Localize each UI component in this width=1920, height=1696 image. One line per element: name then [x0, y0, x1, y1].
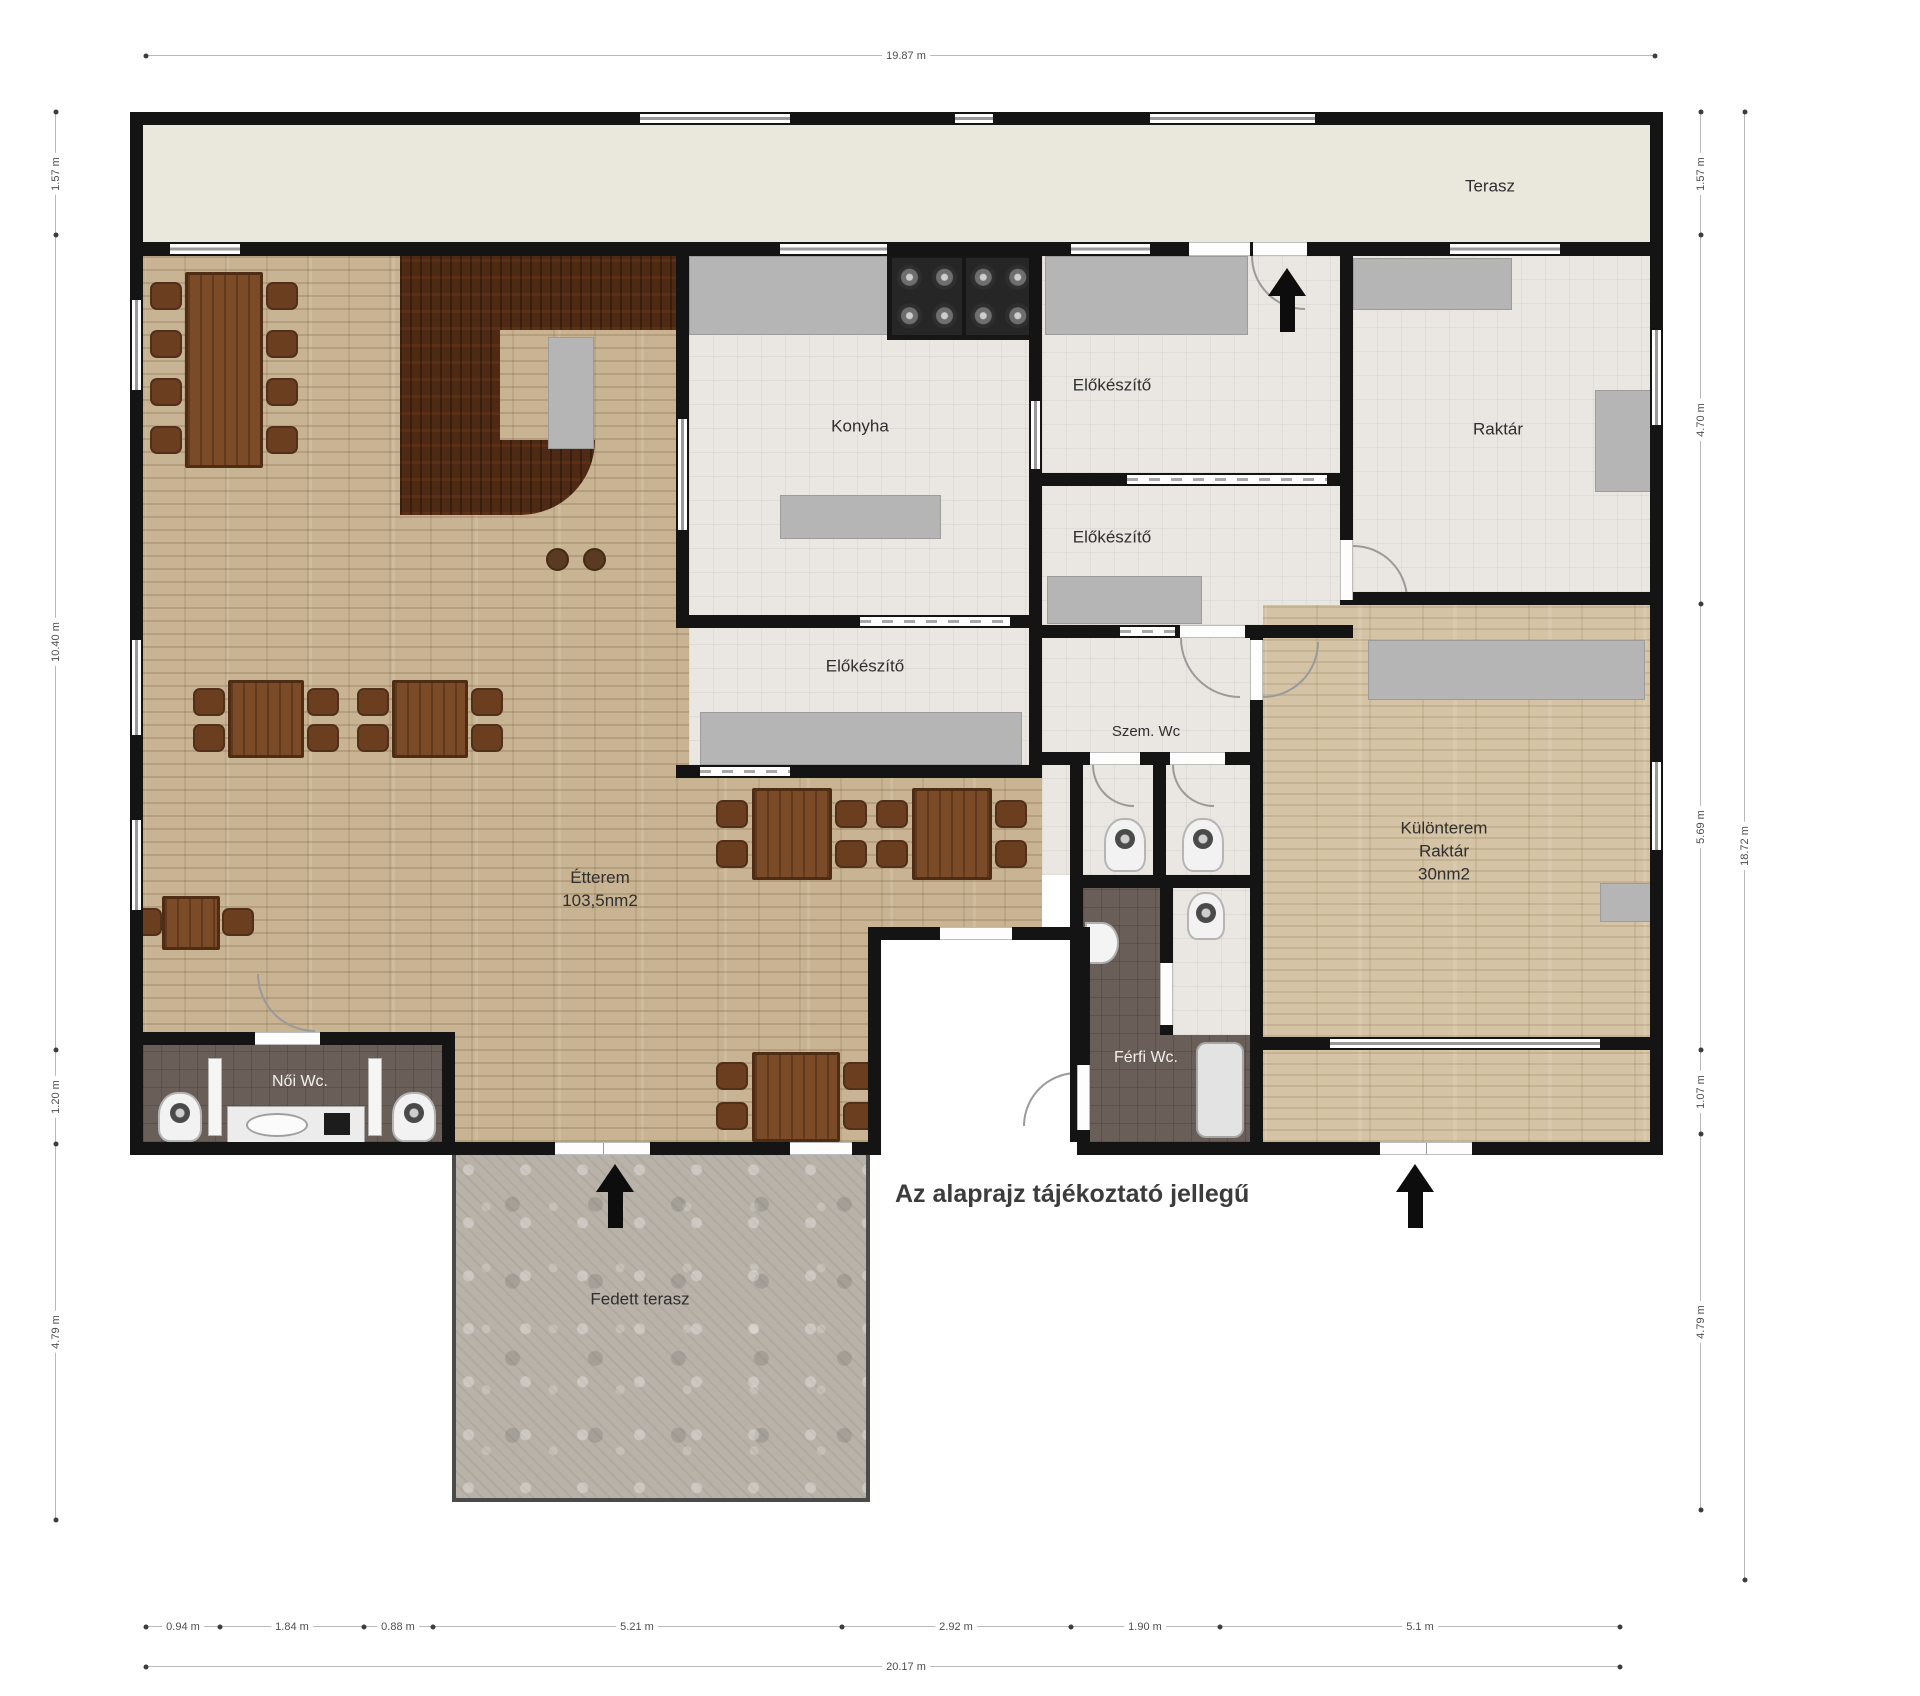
dim-dot — [1699, 602, 1704, 607]
dim-line-bottom-chain — [146, 1626, 1620, 1627]
label-terasz: Terasz — [1465, 176, 1515, 199]
dim-label-top-total: 19.87 m — [882, 50, 930, 62]
chair — [357, 688, 389, 716]
chair — [150, 330, 182, 358]
door-service-exit — [1077, 1065, 1090, 1130]
kulonterem-shelf-small — [1600, 883, 1652, 922]
dim-dot — [1218, 1625, 1223, 1630]
wall-outer-top — [130, 112, 1663, 125]
chair — [266, 282, 298, 310]
label-kulonterem-line1: Különterem — [1401, 819, 1488, 838]
label-kulonterem-line3: 30nm2 — [1418, 864, 1470, 883]
stove — [887, 253, 1040, 340]
door-stall — [1170, 752, 1225, 765]
arrow-stem — [1408, 1192, 1423, 1228]
chair — [471, 724, 503, 752]
raktar-shelf-right — [1595, 390, 1652, 492]
entrance-arrow-bottom-right — [1396, 1164, 1434, 1228]
label-etterem-area: 103,5nm2 — [562, 891, 638, 910]
window — [780, 244, 887, 254]
toilet — [1182, 818, 1224, 872]
door-kulonterem — [1250, 640, 1263, 700]
entrance-arrow-top — [1268, 268, 1306, 332]
dim-label-left-1: 10.40 m — [50, 618, 62, 666]
dim-dot — [54, 1048, 59, 1053]
bar-stool — [583, 548, 606, 571]
window — [1652, 762, 1661, 850]
door-main-entrance — [1253, 242, 1307, 256]
dim-label-bottom-4: 2.92 m — [935, 1621, 977, 1633]
toilet — [392, 1092, 436, 1142]
dim-label-bottom-total: 20.17 m — [882, 1661, 930, 1673]
dim-dot — [1699, 1048, 1704, 1053]
arrow-head-icon — [1268, 268, 1306, 296]
label-szem-wc: Szem. Wc — [1112, 722, 1180, 742]
dim-dot — [1743, 110, 1748, 115]
room-terasz-floor — [143, 125, 1650, 242]
long-table — [185, 272, 263, 468]
chair — [995, 840, 1027, 868]
dim-dot — [54, 1518, 59, 1523]
bar-stool — [546, 548, 569, 571]
dim-dot — [362, 1625, 367, 1630]
wall-notch-left — [868, 927, 881, 1155]
dim-dot — [431, 1625, 436, 1630]
dim-dot — [840, 1625, 845, 1630]
chair — [307, 688, 339, 716]
floor-plan: 19.87 m 0.94 m 1.84 m 0.88 m 5.21 m 2.92… — [0, 0, 1920, 1696]
elokeszito1-counter — [1045, 256, 1248, 335]
window — [132, 820, 141, 910]
label-noi-wc: Női Wc. — [272, 1071, 328, 1093]
door-szemwc — [1180, 625, 1245, 638]
kitchen-counter — [689, 256, 889, 335]
dim-label-right-2: 5.69 m — [1695, 806, 1707, 848]
dim-dot — [1618, 1665, 1623, 1670]
disclaimer-text: Az alaprajz tájékoztató jellegű — [895, 1180, 1249, 1209]
label-elokeszito-1: Előkészítő — [1073, 375, 1151, 398]
dim-label-left-0: 1.57 m — [50, 153, 62, 195]
wall-noiwc-right — [442, 1032, 455, 1142]
noiwc-sink-counter — [227, 1106, 365, 1144]
window — [132, 300, 141, 390]
wall-szemwc-left — [1029, 638, 1042, 765]
dim-label-bottom-0: 0.94 m — [162, 1621, 204, 1633]
door-stall — [1090, 752, 1140, 765]
chair — [716, 840, 748, 868]
dim-label-right-1: 4.70 m — [1695, 399, 1707, 441]
window-kitchen-left — [678, 419, 687, 530]
dim-label-bottom-2: 0.88 m — [377, 1621, 419, 1633]
door-annex — [790, 1142, 852, 1155]
toilet — [1104, 818, 1146, 872]
urinal — [1085, 922, 1119, 964]
wall-stall-left — [1070, 765, 1083, 888]
label-konyha: Konyha — [831, 416, 889, 439]
arrow-stem — [608, 1192, 623, 1228]
label-kulonterem-line2: Raktár — [1419, 842, 1469, 861]
door-etterem-notch — [940, 927, 1012, 940]
sink-basin — [246, 1113, 308, 1137]
label-ferfi-wc: Férfi Wc. — [1114, 1047, 1178, 1069]
dim-label-left-2: 1.20 m — [50, 1076, 62, 1118]
dim-label-right-4: 4.79 m — [1695, 1301, 1707, 1343]
door-raktar — [1340, 540, 1353, 600]
kitchen-island — [780, 495, 941, 539]
chair — [876, 800, 908, 828]
door-opening-terrace — [1189, 242, 1250, 256]
window — [1652, 330, 1661, 425]
entrance-arrow-bottom-left — [596, 1164, 634, 1228]
chair — [222, 908, 254, 936]
soap-dispenser — [324, 1113, 350, 1135]
dim-dot — [144, 1665, 149, 1670]
room-fedett-terasz-floor — [456, 1155, 866, 1498]
fedett-terasz-border-left — [452, 1155, 456, 1502]
dim-label-right-0: 1.57 m — [1695, 153, 1707, 195]
chair — [471, 688, 503, 716]
dim-label-bottom-3: 5.21 m — [616, 1621, 658, 1633]
noiwc-divider — [208, 1058, 222, 1136]
label-elokeszito-2: Előkészítő — [1073, 527, 1151, 550]
label-kulonterem: Különterem Raktár 30nm2 — [1401, 818, 1488, 887]
chair — [193, 688, 225, 716]
chair — [357, 724, 389, 752]
wall-outer-left — [130, 112, 143, 1155]
door-noiwc — [255, 1032, 320, 1045]
wall-szemwc-bottom — [1029, 752, 1263, 765]
sliding-door — [1127, 475, 1327, 484]
chair — [266, 378, 298, 406]
chair — [995, 800, 1027, 828]
sliding-door — [860, 617, 1010, 626]
window — [640, 114, 790, 123]
dim-dot — [54, 1142, 59, 1147]
arrow-head-icon — [1396, 1164, 1434, 1192]
dim-dot — [218, 1625, 223, 1630]
door-ferfiwc-partition — [1160, 963, 1173, 1025]
dim-dot — [144, 54, 149, 59]
elokeszito2-counter — [1047, 576, 1202, 624]
dim-dot — [1653, 54, 1658, 59]
dim-dot — [144, 1625, 149, 1630]
chair — [193, 724, 225, 752]
stove-burners-right — [966, 258, 1036, 335]
dim-dot — [1699, 1508, 1704, 1513]
table — [752, 1052, 840, 1142]
wall-bottom-left — [130, 1142, 881, 1155]
double-door-fedett-terasz — [555, 1142, 650, 1155]
sliding-door — [700, 767, 790, 776]
dim-label-bottom-1: 1.84 m — [271, 1621, 313, 1633]
table — [912, 788, 992, 880]
chair — [716, 800, 748, 828]
wall-stall-bottom — [1070, 875, 1263, 888]
raktar-counter — [1353, 258, 1512, 310]
window-strip-long — [1330, 1039, 1600, 1048]
small-table — [162, 896, 220, 950]
sliding-door — [1120, 627, 1175, 636]
window — [1150, 114, 1315, 123]
chair — [150, 378, 182, 406]
dim-label-right-3: 1.07 m — [1695, 1071, 1707, 1113]
dim-dot — [1699, 1132, 1704, 1137]
dim-label-bottom-5: 1.90 m — [1124, 1621, 1166, 1633]
chair — [716, 1102, 748, 1130]
label-fedett-terasz: Fedett terasz — [590, 1289, 689, 1312]
window — [1071, 244, 1150, 254]
elokeszito3-counter — [700, 712, 1022, 765]
stove-burners-left — [892, 258, 962, 335]
dim-dot — [1699, 110, 1704, 115]
arrow-stem — [1280, 296, 1295, 332]
chair — [150, 282, 182, 310]
window — [1450, 244, 1560, 254]
chair — [307, 724, 339, 752]
chair — [835, 800, 867, 828]
table — [752, 788, 832, 880]
table — [228, 680, 304, 758]
wall-stall-divider — [1153, 765, 1166, 888]
dim-label-right-total: 18.72 m — [1739, 822, 1751, 870]
label-raktar: Raktár — [1473, 419, 1523, 442]
dim-line-left-chain — [55, 112, 56, 1520]
chair — [150, 426, 182, 454]
dim-dot — [1618, 1625, 1623, 1630]
wall-bottom-right — [1077, 1142, 1663, 1155]
window — [170, 244, 240, 254]
toilet — [1187, 892, 1225, 940]
dim-dot — [1743, 1578, 1748, 1583]
double-door-kulonterem-entry — [1380, 1142, 1472, 1155]
window — [132, 640, 141, 735]
wall-raktar-bottom — [1340, 592, 1663, 605]
fedett-terasz-border-right — [866, 1155, 870, 1502]
chair — [266, 426, 298, 454]
dim-label-left-3: 4.79 m — [50, 1311, 62, 1353]
shower-tub — [1196, 1042, 1244, 1138]
fedett-terasz-border-bottom — [452, 1498, 870, 1502]
chair — [876, 840, 908, 868]
chair — [266, 330, 298, 358]
arrow-head-icon — [596, 1164, 634, 1192]
dim-dot — [1069, 1625, 1074, 1630]
window-kitchen-right — [1031, 401, 1040, 469]
label-elokeszito-3: Előkészítő — [826, 656, 904, 679]
kulonterem-counter — [1368, 640, 1645, 700]
dim-label-bottom-6: 5.1 m — [1402, 1621, 1438, 1633]
chair — [835, 840, 867, 868]
wall-outer-right — [1650, 112, 1663, 1155]
label-etterem: Étterem 103,5nm2 — [562, 867, 638, 913]
noiwc-divider — [368, 1058, 382, 1136]
window — [955, 114, 993, 123]
dim-dot — [54, 233, 59, 238]
room-strip-floor — [1263, 1050, 1650, 1142]
chair — [716, 1062, 748, 1090]
etterem-sideboard — [548, 337, 594, 449]
toilet — [158, 1092, 202, 1142]
table — [392, 680, 468, 758]
dim-dot — [54, 110, 59, 115]
label-etterem-name: Étterem — [570, 868, 630, 887]
dim-dot — [1699, 233, 1704, 238]
wall-below-terrace — [143, 242, 1650, 256]
